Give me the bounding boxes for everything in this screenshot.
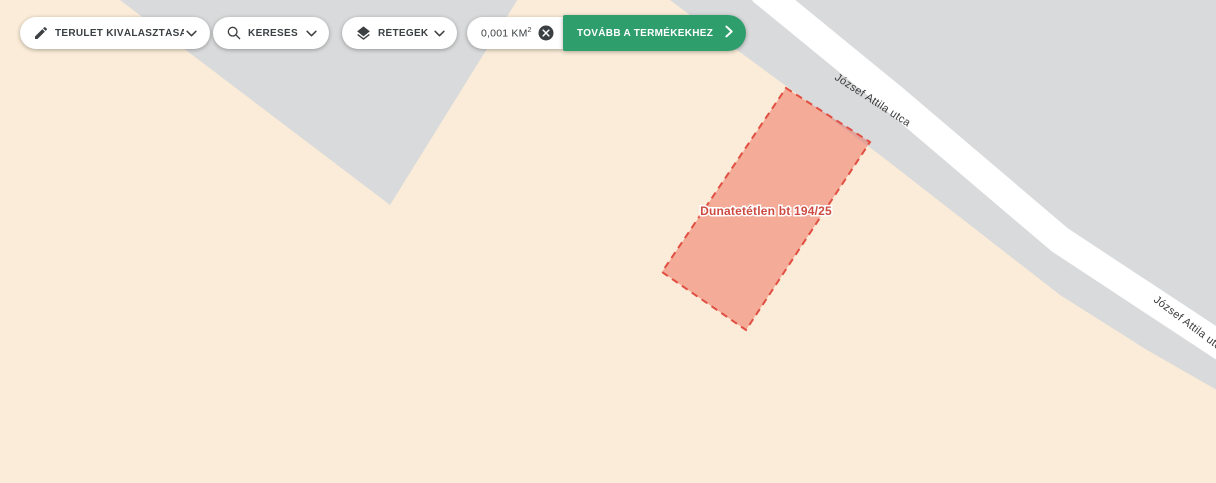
area-select-button[interactable]: TERÜLET KIVÁLASZTÁSA xyxy=(20,17,210,49)
area-proceed-group: 0,001 KM2 TOVÁBB A TERMÉKEKHEZ xyxy=(467,15,746,51)
search-label: KERESÉS xyxy=(242,28,304,39)
selected-area-readout: 0,001 KM2 xyxy=(467,17,563,49)
map-canvas[interactable]: József Attila utca József Attila utca Du… xyxy=(0,0,1216,483)
area-select-label: TERÜLET KIVÁLASZTÁSA xyxy=(49,28,184,39)
chevron-down-icon xyxy=(304,26,319,41)
proceed-label: TOVÁBB A TERMÉKEKHEZ xyxy=(577,28,720,39)
cancel-icon xyxy=(537,24,555,42)
map-view: József Attila utca József Attila utca Du… xyxy=(0,0,1216,483)
parcel-label: Dunatetétlen bt 194/25 xyxy=(700,204,832,218)
chevron-down-icon xyxy=(432,26,447,41)
chevron-down-icon xyxy=(184,26,199,41)
selected-area-value: 0,001 KM2 xyxy=(481,27,532,40)
layers-icon xyxy=(355,25,372,42)
search-button[interactable]: KERESÉS xyxy=(213,17,329,49)
layers-button[interactable]: RÉTEGEK xyxy=(342,17,457,49)
layers-label: RÉTEGEK xyxy=(372,28,432,39)
pencil-icon xyxy=(33,25,49,41)
clear-area-button[interactable] xyxy=(537,24,555,42)
proceed-to-products-button[interactable]: TOVÁBB A TERMÉKEKHEZ xyxy=(563,15,746,51)
search-icon xyxy=(226,25,242,41)
chevron-right-icon xyxy=(720,23,737,43)
